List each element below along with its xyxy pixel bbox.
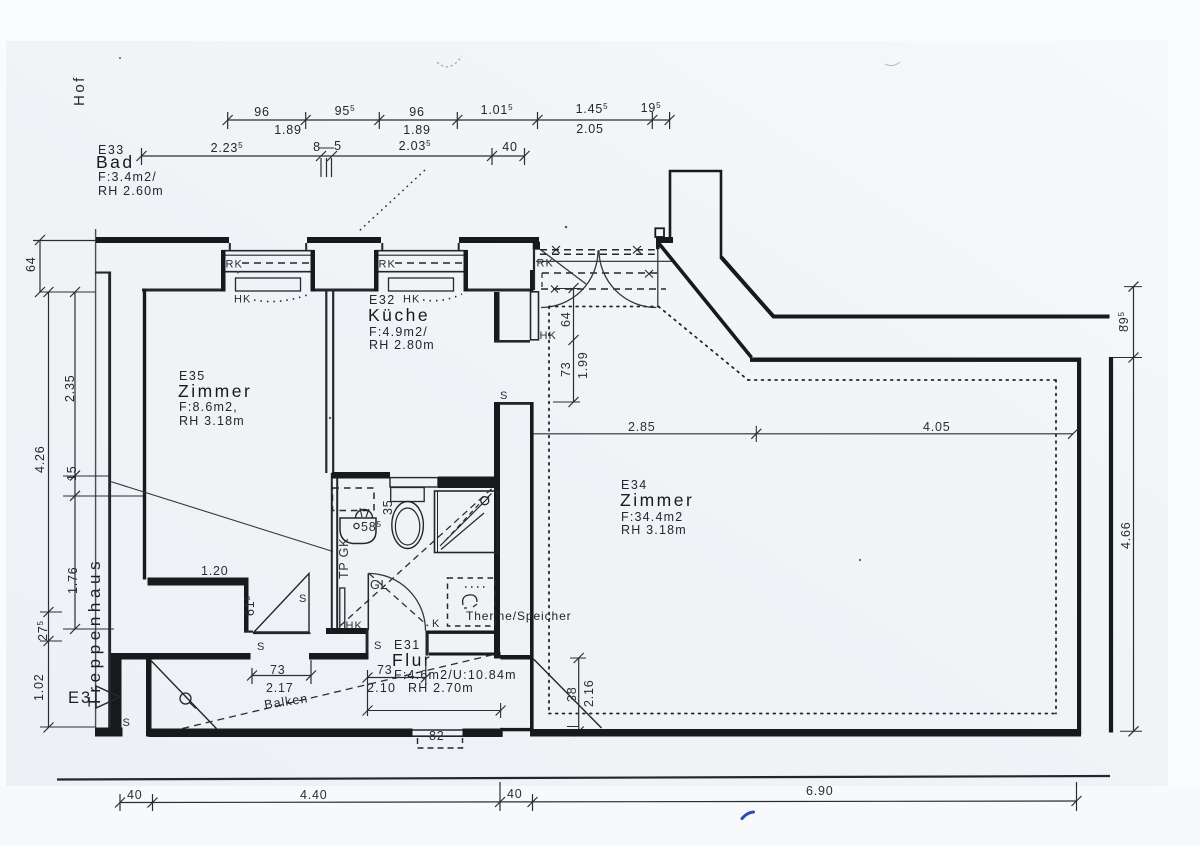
- svg-text:S: S: [374, 640, 381, 652]
- svg-text:Zimmer: Zimmer: [178, 381, 252, 401]
- svg-text:RH 2.80m: RH 2.80m: [369, 338, 435, 352]
- svg-text:15: 15: [65, 465, 79, 481]
- svg-text:RH 2.60m: RH 2.60m: [98, 184, 164, 198]
- svg-text:96: 96: [254, 105, 270, 119]
- svg-text:73: 73: [270, 663, 286, 677]
- svg-text:82: 82: [429, 729, 445, 743]
- svg-text:HK: HK: [540, 330, 557, 342]
- svg-text:2.35: 2.35: [63, 374, 77, 402]
- svg-text:4.40: 4.40: [300, 788, 328, 802]
- svg-text:TP GK: TP GK: [337, 538, 351, 579]
- svg-text:8: 8: [313, 140, 321, 154]
- svg-text:RK: RK: [537, 258, 554, 270]
- svg-text:Therme/Speicher: Therme/Speicher: [466, 609, 572, 623]
- svg-text:2.10: 2.10: [367, 681, 396, 695]
- svg-text:5: 5: [334, 139, 342, 153]
- svg-text:40: 40: [502, 140, 518, 154]
- svg-text:S: S: [123, 717, 130, 729]
- svg-text:Hof: Hof: [71, 75, 88, 106]
- svg-text:F:4.9m2/: F:4.9m2/: [369, 325, 428, 339]
- svg-text:73: 73: [559, 361, 573, 377]
- svg-text:RH 3.18m: RH 3.18m: [621, 523, 687, 537]
- svg-text:F:8.6m2,: F:8.6m2,: [179, 400, 238, 414]
- svg-text:F:3.4m2/: F:3.4m2/: [98, 170, 157, 184]
- svg-text:6.90: 6.90: [806, 784, 834, 798]
- svg-text:1.02: 1.02: [32, 673, 46, 701]
- svg-text:RH 2.70m: RH 2.70m: [408, 681, 474, 695]
- svg-text:K: K: [432, 618, 440, 630]
- svg-text:RH 3.18m: RH 3.18m: [179, 414, 245, 428]
- svg-text:E3: E3: [68, 689, 92, 707]
- svg-text:S: S: [257, 641, 264, 653]
- svg-text:64: 64: [24, 256, 38, 272]
- svg-text:HK: HK: [403, 294, 420, 306]
- svg-text:4.66: 4.66: [1119, 521, 1133, 549]
- svg-text:1.20: 1.20: [201, 564, 229, 578]
- svg-text:Bad: Bad: [96, 152, 135, 172]
- svg-text:64: 64: [559, 311, 573, 327]
- svg-text:Küche: Küche: [368, 305, 430, 325]
- svg-text:2.17: 2.17: [266, 681, 294, 695]
- svg-text:HK: HK: [234, 294, 251, 306]
- svg-text:1.76: 1.76: [66, 566, 80, 594]
- svg-text:RK: RK: [379, 259, 396, 271]
- svg-text:F:4.6m2/U:10.84m: F:4.6m2/U:10.84m: [394, 668, 517, 682]
- svg-text:73: 73: [377, 663, 393, 677]
- svg-text:2.05: 2.05: [576, 122, 604, 136]
- svg-text:1.99: 1.99: [576, 351, 590, 379]
- svg-text:40: 40: [507, 787, 523, 801]
- svg-text:1.89: 1.89: [403, 123, 431, 137]
- svg-text:4.26: 4.26: [33, 445, 47, 473]
- svg-text:Treppenhaus: Treppenhaus: [85, 557, 104, 707]
- svg-text:F:34.4m2: F:34.4m2: [621, 510, 683, 524]
- svg-text:35: 35: [381, 499, 395, 515]
- svg-text:96: 96: [409, 105, 425, 119]
- svg-text:40: 40: [127, 788, 143, 802]
- svg-text:Zimmer: Zimmer: [620, 490, 694, 510]
- svg-text:38: 38: [565, 686, 579, 702]
- svg-text:2.85: 2.85: [628, 420, 656, 434]
- svg-text:S: S: [299, 593, 306, 605]
- svg-text:4.05: 4.05: [923, 420, 951, 434]
- svg-text:RK: RK: [226, 259, 243, 271]
- svg-text:2.16: 2.16: [582, 679, 596, 707]
- svg-text:1.89: 1.89: [274, 123, 302, 137]
- svg-text:S: S: [500, 390, 507, 402]
